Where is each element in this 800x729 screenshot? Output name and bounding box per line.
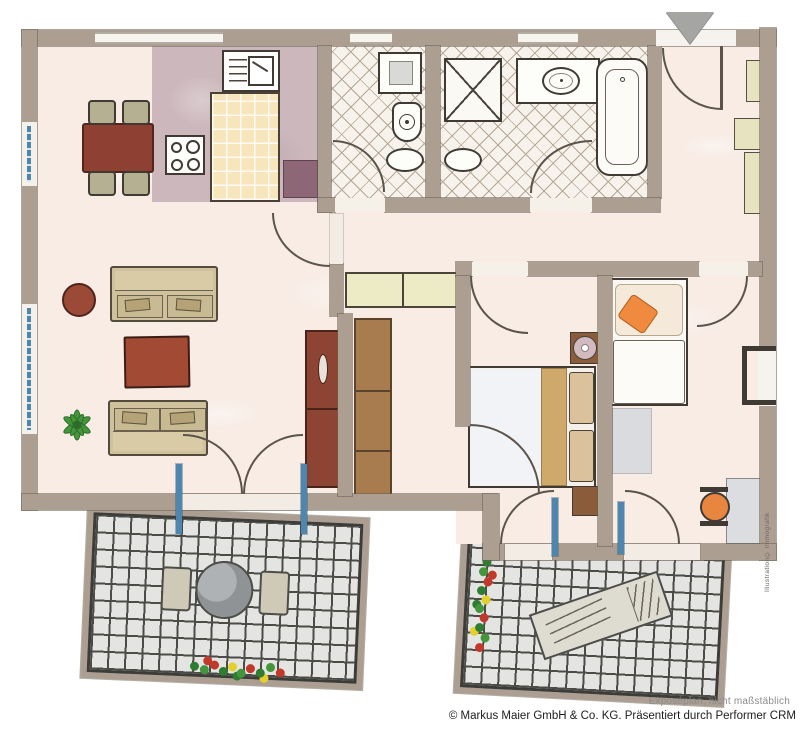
dining-chair: [88, 100, 116, 125]
entrance-door-leaf: [720, 46, 723, 110]
fridge: [283, 160, 318, 198]
bed-blanket: [613, 340, 685, 404]
sofa-top: [110, 266, 218, 322]
sideboard-divider: [402, 274, 404, 306]
guest-toilet: [392, 102, 422, 142]
sofa-pillow: [125, 298, 151, 312]
wall-bath-bottom: [592, 198, 660, 212]
door-opening-bedroom: [472, 262, 528, 276]
bathtub: [596, 58, 648, 176]
hall-wardrobe: [354, 318, 392, 502]
window-glass: [27, 308, 31, 430]
wardrobe-divider: [356, 390, 390, 392]
shower: [444, 58, 502, 122]
bed-pillow: [569, 430, 594, 482]
balcony-door-living: [182, 494, 301, 510]
dining-chair: [122, 100, 150, 125]
balcony-door-bedroom: [505, 544, 552, 560]
desk-chair: [700, 492, 730, 522]
plant-icon: [54, 400, 100, 450]
door-opening-kids: [699, 262, 748, 276]
faucet-line: [252, 61, 268, 72]
desk-chair-arm: [700, 521, 728, 526]
desk: [726, 478, 762, 544]
bed-pillow: [569, 372, 594, 424]
wall-bath-divider: [426, 46, 440, 198]
window-kids-frame: [742, 400, 776, 405]
side-table: [62, 283, 96, 317]
sofa-pillow: [122, 411, 148, 425]
door-frame-post: [301, 464, 307, 534]
lounger-backrest: [626, 579, 664, 622]
bath-bidet: [444, 148, 482, 172]
tub-inner: [605, 69, 639, 165]
rug: [612, 408, 652, 474]
door-opening-living-hall: [330, 214, 343, 264]
bedside-lamp: [573, 336, 597, 360]
toilet-drain: [405, 120, 409, 124]
door-frame-post: [176, 464, 182, 534]
window-top-kitchen: [95, 32, 223, 44]
wall-bath-entrance: [648, 46, 661, 198]
copyright-line: © Markus Maier GmbH & Co. KG. Präsentier…: [449, 710, 796, 722]
basin-drain: [560, 79, 563, 82]
nightstand: [572, 486, 600, 516]
balcony-chair-right: [258, 571, 290, 616]
wall-hall-lower: [338, 314, 352, 496]
window-top-guest-bath: [350, 32, 392, 44]
vanity-basin: [542, 67, 580, 95]
single-bed: [610, 278, 688, 406]
stove: [165, 135, 205, 175]
sun-lounger: [529, 571, 673, 661]
wall-bedroom-left: [456, 276, 470, 426]
entrance-marker-icon: [666, 12, 714, 44]
dining-chair: [122, 171, 150, 196]
door-frame-post: [552, 498, 558, 556]
window-left-kitchen: [22, 122, 37, 186]
sink-basin: [248, 56, 274, 86]
window-kids-frame: [742, 346, 747, 405]
guest-washbasin: [378, 52, 422, 94]
bed-runner: [541, 368, 567, 486]
washbasin-bowl: [389, 61, 413, 85]
dining-table: [82, 123, 154, 173]
sink-drainer: [229, 59, 247, 85]
wall-kitchen-bath: [318, 46, 331, 212]
sofa-pillow: [176, 298, 202, 312]
door-opening-bathroom: [530, 198, 592, 212]
wall-hall-bedroom: [456, 262, 472, 276]
door-frame-post: [618, 502, 624, 554]
balcony-left: [80, 506, 369, 690]
wall-bedroom-kids: [598, 276, 612, 546]
wall-bath-bottom: [318, 198, 335, 212]
nightstand: [570, 332, 600, 364]
flower-box: [190, 662, 199, 671]
balcony-left-tiles: [87, 512, 364, 684]
balcony-door-kids: [624, 544, 700, 560]
kitchen-sink: [222, 50, 280, 92]
wall-hall-upper: [330, 264, 343, 316]
wardrobe-divider: [356, 450, 390, 452]
cabinet-handle: [318, 354, 328, 384]
entry-cabinet: [734, 118, 762, 150]
illustrator-watermark: Illustration© immografik: [764, 452, 771, 592]
balcony-chair-left: [160, 566, 192, 611]
wall-hall-bedroom: [748, 262, 762, 276]
sofa-backrest: [115, 271, 213, 291]
wall-bath-bottom: [385, 198, 530, 212]
window-glass: [27, 126, 31, 182]
dining-chair: [88, 171, 116, 196]
coffee-table: [124, 335, 191, 388]
vanity: [516, 58, 600, 104]
wall-left: [22, 30, 37, 510]
window-kids: [758, 350, 776, 406]
apartment-floorplan: Illustration© immografik: [0, 0, 800, 729]
kitchen-island: [210, 92, 280, 202]
floorplan-page: Illustration© immografik Exposéplan, nic…: [0, 0, 800, 729]
lamp-center: [581, 344, 589, 352]
cabinet-divider: [307, 408, 339, 410]
tv-cabinet: [305, 330, 341, 488]
balcony-table: [194, 560, 254, 620]
plan-disclaimer: Exposéplan, nicht maßstäblich: [649, 696, 790, 707]
hall-sideboard: [345, 272, 461, 308]
tub-drain: [620, 77, 625, 82]
wall-hall-bedroom: [528, 262, 699, 276]
window-kids-frame: [742, 346, 776, 351]
sofa-pillow: [170, 411, 196, 425]
lounger-lines: [545, 598, 613, 650]
window-left-living: [22, 304, 37, 434]
door-opening-guest-bath: [335, 198, 385, 212]
wall-step: [483, 494, 499, 560]
window-top-bathroom: [518, 32, 578, 44]
guest-bidet: [386, 148, 424, 172]
